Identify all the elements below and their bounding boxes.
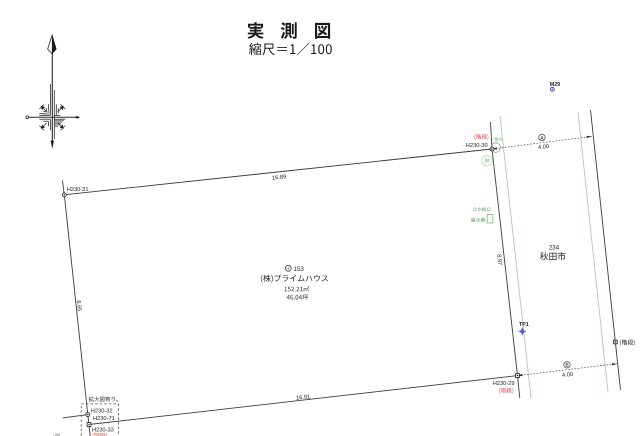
svg-text:4.00: 4.00: [538, 144, 550, 151]
svg-text:153: 153: [294, 266, 305, 273]
svg-text:H230-33: H230-33: [92, 428, 114, 434]
svg-text:234: 234: [549, 244, 560, 251]
svg-text:H230-31: H230-31: [67, 187, 89, 193]
svg-text:H230-30: H230-30: [466, 143, 488, 149]
svg-text:4.00: 4.00: [562, 372, 574, 379]
svg-text:TP1: TP1: [519, 322, 529, 328]
svg-text:8.97: 8.97: [495, 254, 502, 266]
svg-text:M29: M29: [550, 82, 560, 88]
svg-text:H230-29: H230-29: [493, 381, 515, 387]
svg-text:8.65: 8.65: [75, 300, 82, 312]
svg-text:H230-71: H230-71: [93, 416, 115, 422]
svg-text:H230-32: H230-32: [91, 408, 113, 414]
